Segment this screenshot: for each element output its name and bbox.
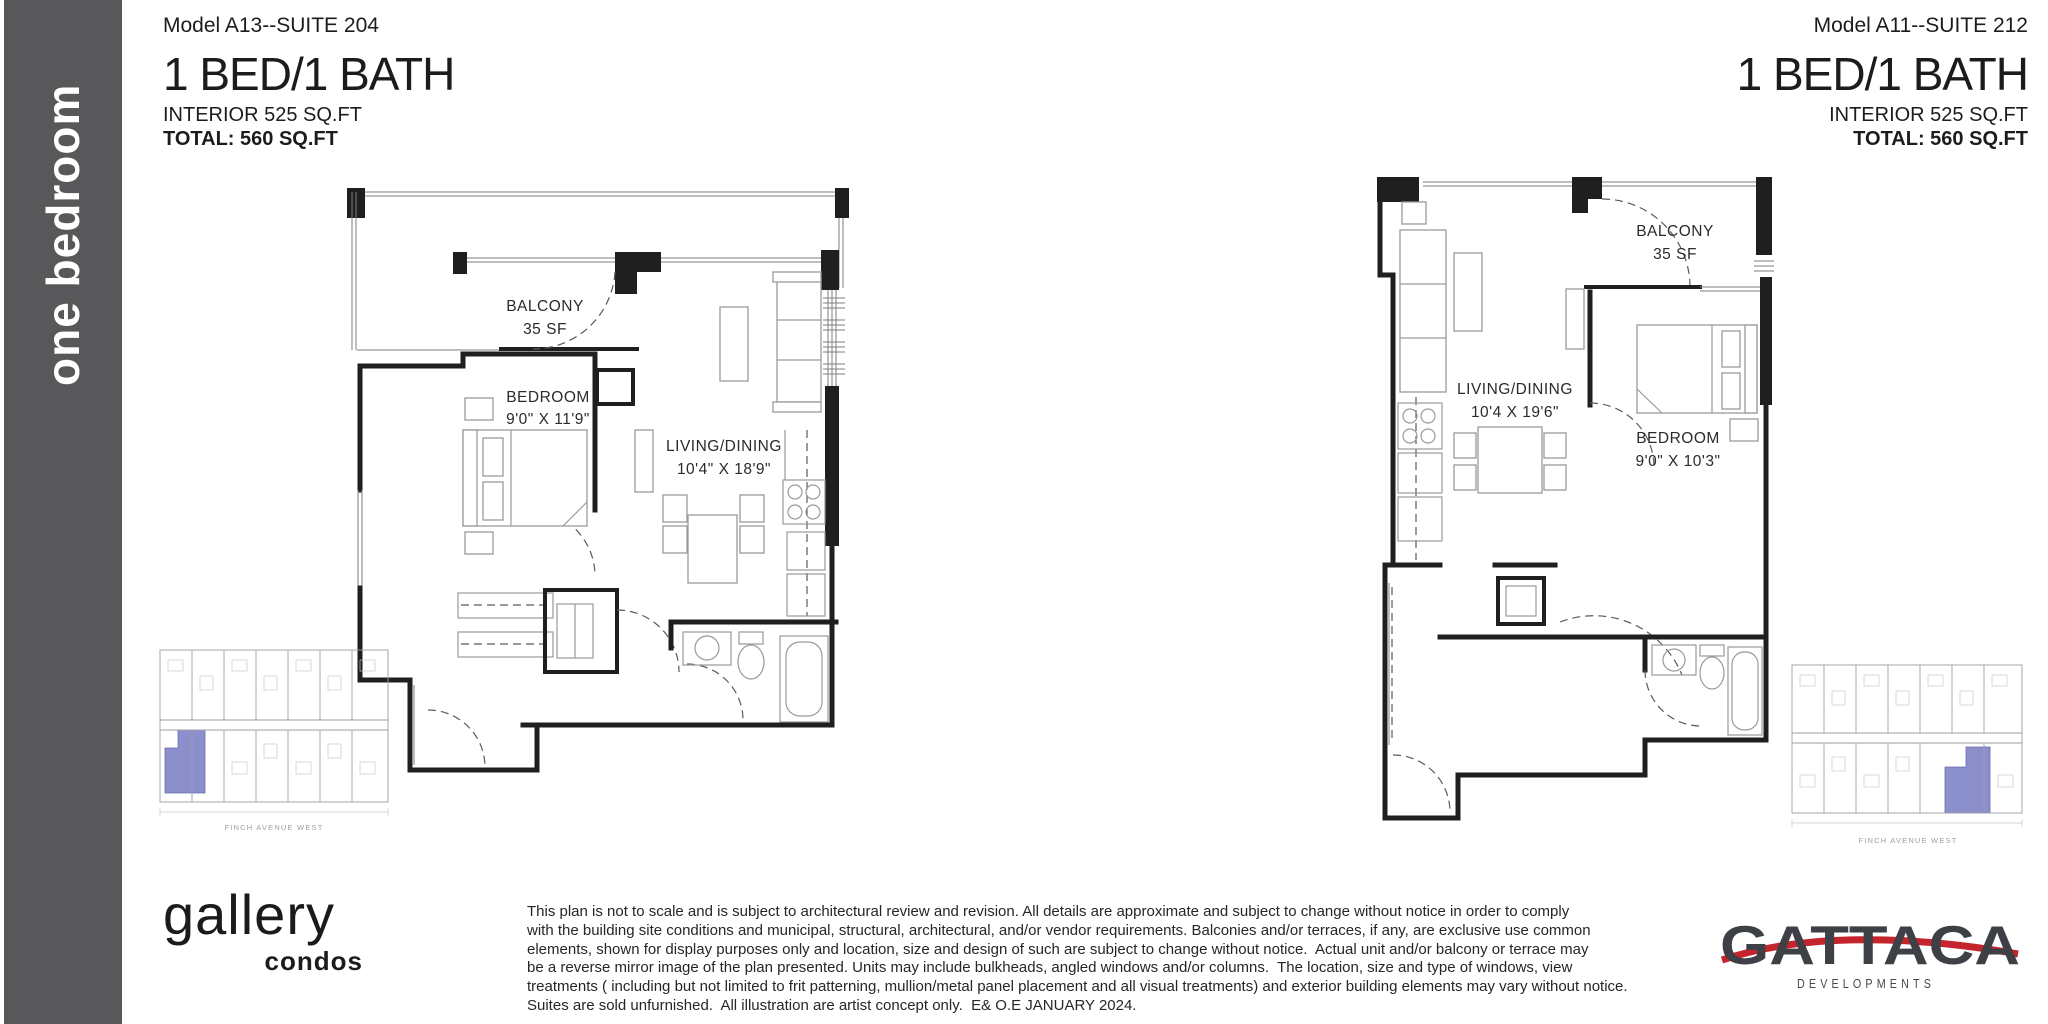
model-name: Model A11--SUITE 212: [1737, 14, 2028, 38]
living-label: LIVING/DINING: [666, 438, 782, 455]
suite-header-a13: Model A13--SUITE 204 1 BED/1 BATH INTERI…: [163, 14, 454, 151]
keyplan-street-label: FINCH AVENUE WEST: [224, 823, 323, 832]
window-mullion-hatches: [1754, 261, 1774, 271]
bedroom-dim-label: 9'0" X 11'9": [506, 411, 590, 428]
bedroom-dim-label: 9'0" X 10'3": [1636, 453, 1721, 470]
disclaimer-line: Suites are sold unfurnished. All illustr…: [527, 997, 1628, 1016]
model-name: Model A13--SUITE 204: [163, 14, 454, 38]
living-dim-label: 10'4 X 19'6": [1471, 404, 1559, 421]
disclaimer-line: elements, shown for display purposes onl…: [527, 941, 1628, 960]
suite-header-a11: Model A11--SUITE 212 1 BED/1 BATH INTERI…: [1737, 14, 2028, 151]
living-label: LIVING/DINING: [1457, 381, 1573, 398]
developer-sub: DEVELOPMENTS: [1797, 976, 1935, 991]
living-dim-label: 10'4" X 18'9": [677, 461, 771, 478]
balcony-area-label: 35 SF: [1653, 246, 1697, 263]
developer-name: GATTACA: [1720, 914, 2020, 976]
balcony-area-label: 35 SF: [523, 321, 567, 338]
disclaimer-text: This plan is not to scale and is subject…: [527, 903, 1628, 1016]
bedroom-label: BEDROOM: [506, 389, 590, 406]
interior-area: INTERIOR 525 SQ.FT: [1737, 104, 2028, 127]
total-area: TOTAL: 560 SQ.FT: [1737, 127, 2028, 151]
floorplan-drawing-a11: BALCONY 35 SF BEDROOM 9'0" X 10'3": [1360, 135, 1780, 825]
disclaimer-line: treatments ( including but not limited t…: [527, 978, 1628, 997]
brand-name: gallery: [163, 884, 363, 946]
disclaimer-line: with the building site conditions and mu…: [527, 922, 1628, 941]
disclaimer-line: This plan is not to scale and is subject…: [527, 903, 1628, 922]
floorplan-page: one bedroom Model A13--SUITE 204 1 BED/1…: [0, 0, 2048, 1024]
category-label: one bedroom: [4, 0, 122, 470]
brand-sub: condos: [163, 946, 363, 977]
developer-logo-art: GATTACA DEVELOPMENTS: [1706, 896, 2036, 1006]
window-mullion-hatches: [823, 298, 845, 374]
interior-area: INTERIOR 525 SQ.FT: [163, 104, 454, 127]
keyplan-a11: FINCH AVENUE WEST: [1784, 655, 2044, 850]
unit-type: 1 BED/1 BATH: [1737, 51, 2028, 97]
disclaimer-line: be a reverse mirror image of the plan pr…: [527, 959, 1628, 978]
category-sidebar: one bedroom: [4, 0, 122, 1024]
highlighted-unit: [165, 730, 205, 793]
developer-logo: GATTACA DEVELOPMENTS: [1706, 896, 2036, 1011]
bedroom-label: BEDROOM: [1636, 430, 1720, 447]
unit-dividers: [192, 650, 352, 802]
keyplan-a13: FINCH AVENUE WEST: [138, 642, 398, 837]
balcony-label: BALCONY: [506, 298, 584, 315]
balcony-label: BALCONY: [1636, 223, 1714, 240]
keyplan-street-label: FINCH AVENUE WEST: [1858, 836, 1957, 845]
total-area: TOTAL: 560 SQ.FT: [163, 127, 454, 151]
highlighted-unit: [1945, 747, 1990, 813]
unit-type: 1 BED/1 BATH: [163, 51, 454, 97]
brand-logo: gallery condos: [163, 884, 363, 977]
